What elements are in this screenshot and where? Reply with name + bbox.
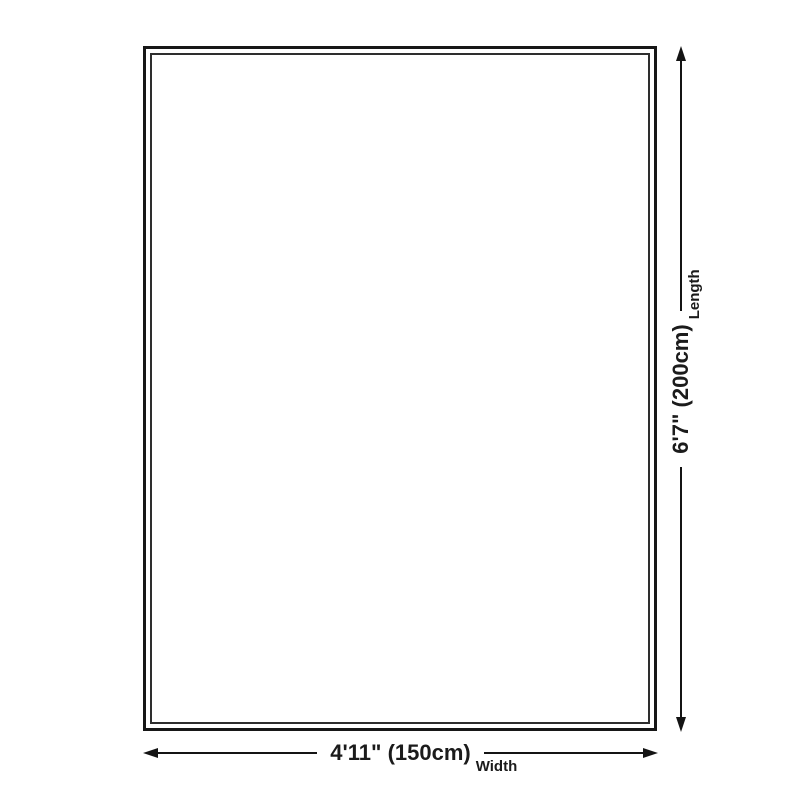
width-dimension-line-right: Width <box>484 752 643 754</box>
length-dimension-line-upper: Length <box>680 61 682 311</box>
width-dimension: 4'11" (150cm) Width <box>143 741 658 765</box>
width-label: Width <box>476 759 518 774</box>
length-dimension: 6'7" (200cm) Length <box>669 46 693 732</box>
arrow-up-icon <box>676 46 686 61</box>
length-label: Length <box>687 269 702 319</box>
arrow-down-icon <box>676 717 686 732</box>
length-dimension-line-lower <box>680 467 682 717</box>
product-outline-outer <box>143 46 657 731</box>
arrow-right-icon <box>643 748 658 758</box>
width-dimension-line-left <box>158 752 317 754</box>
product-outline-inner <box>150 53 650 724</box>
arrow-left-icon <box>143 748 158 758</box>
length-value: 6'7" (200cm) <box>668 311 694 466</box>
width-value: 4'11" (150cm) <box>317 740 483 766</box>
dimension-diagram: 6'7" (200cm) Length 4'11" (150cm) Width <box>0 0 800 800</box>
